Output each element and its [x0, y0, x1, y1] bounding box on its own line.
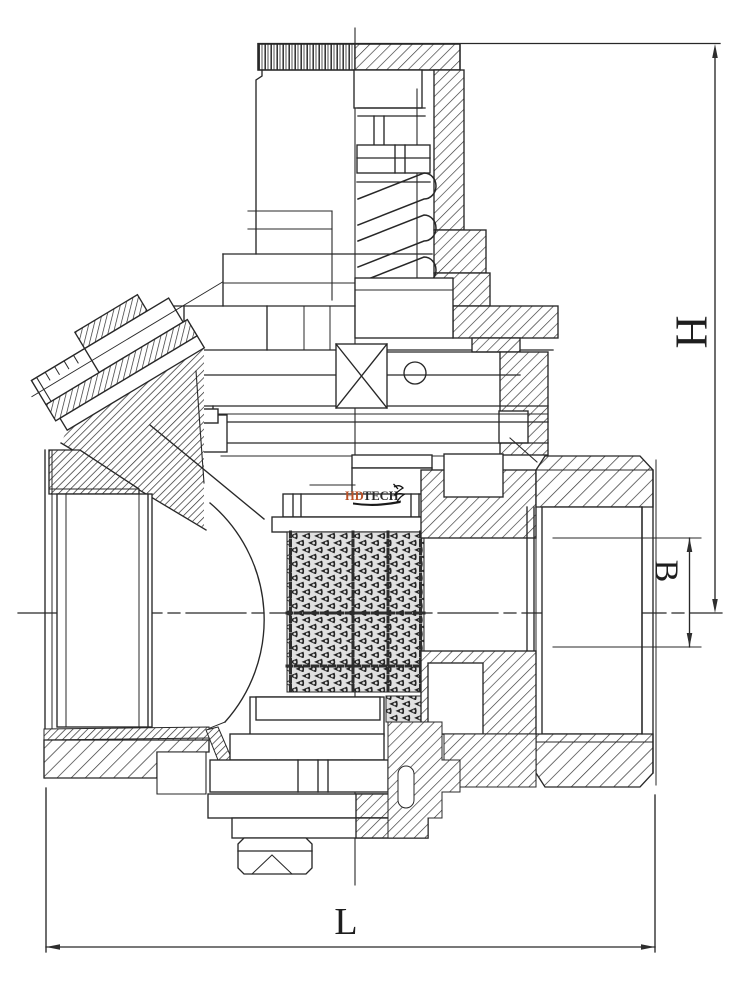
svg-text:B: B	[648, 560, 685, 583]
svg-text:H: H	[667, 315, 718, 348]
svg-text:TECH: TECH	[363, 489, 399, 503]
svg-text:L: L	[334, 901, 357, 943]
svg-text:HD: HD	[345, 489, 364, 503]
